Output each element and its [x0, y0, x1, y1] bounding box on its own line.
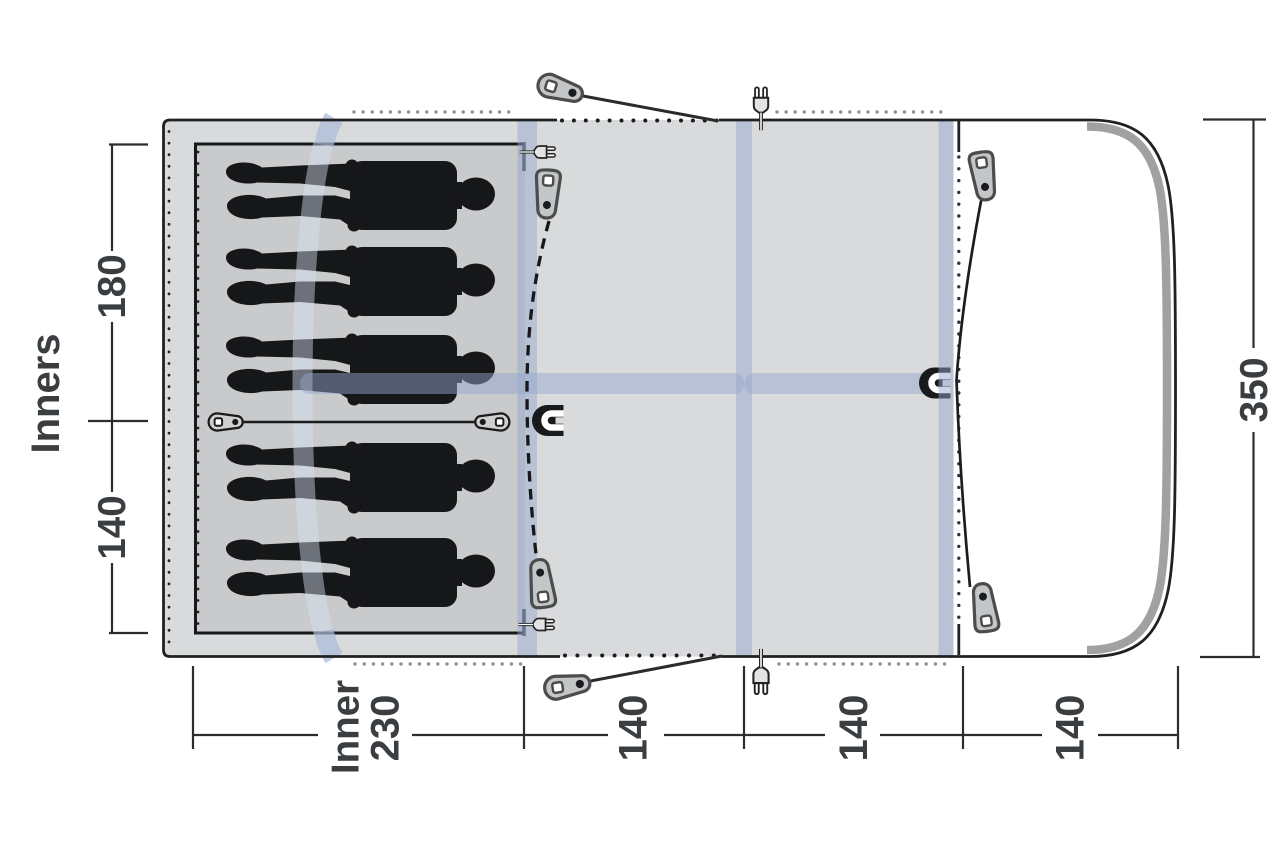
svg-text:350: 350 [1233, 357, 1276, 422]
svg-text:140: 140 [612, 695, 656, 762]
svg-text:230: 230 [364, 695, 408, 762]
svg-text:140: 140 [1049, 695, 1093, 762]
svg-text:Inners: Inners [24, 333, 68, 453]
svg-text:140: 140 [832, 695, 876, 762]
svg-text:Inner: Inner [325, 680, 368, 774]
svg-text:180: 180 [91, 254, 134, 318]
svg-text:140: 140 [91, 495, 134, 559]
